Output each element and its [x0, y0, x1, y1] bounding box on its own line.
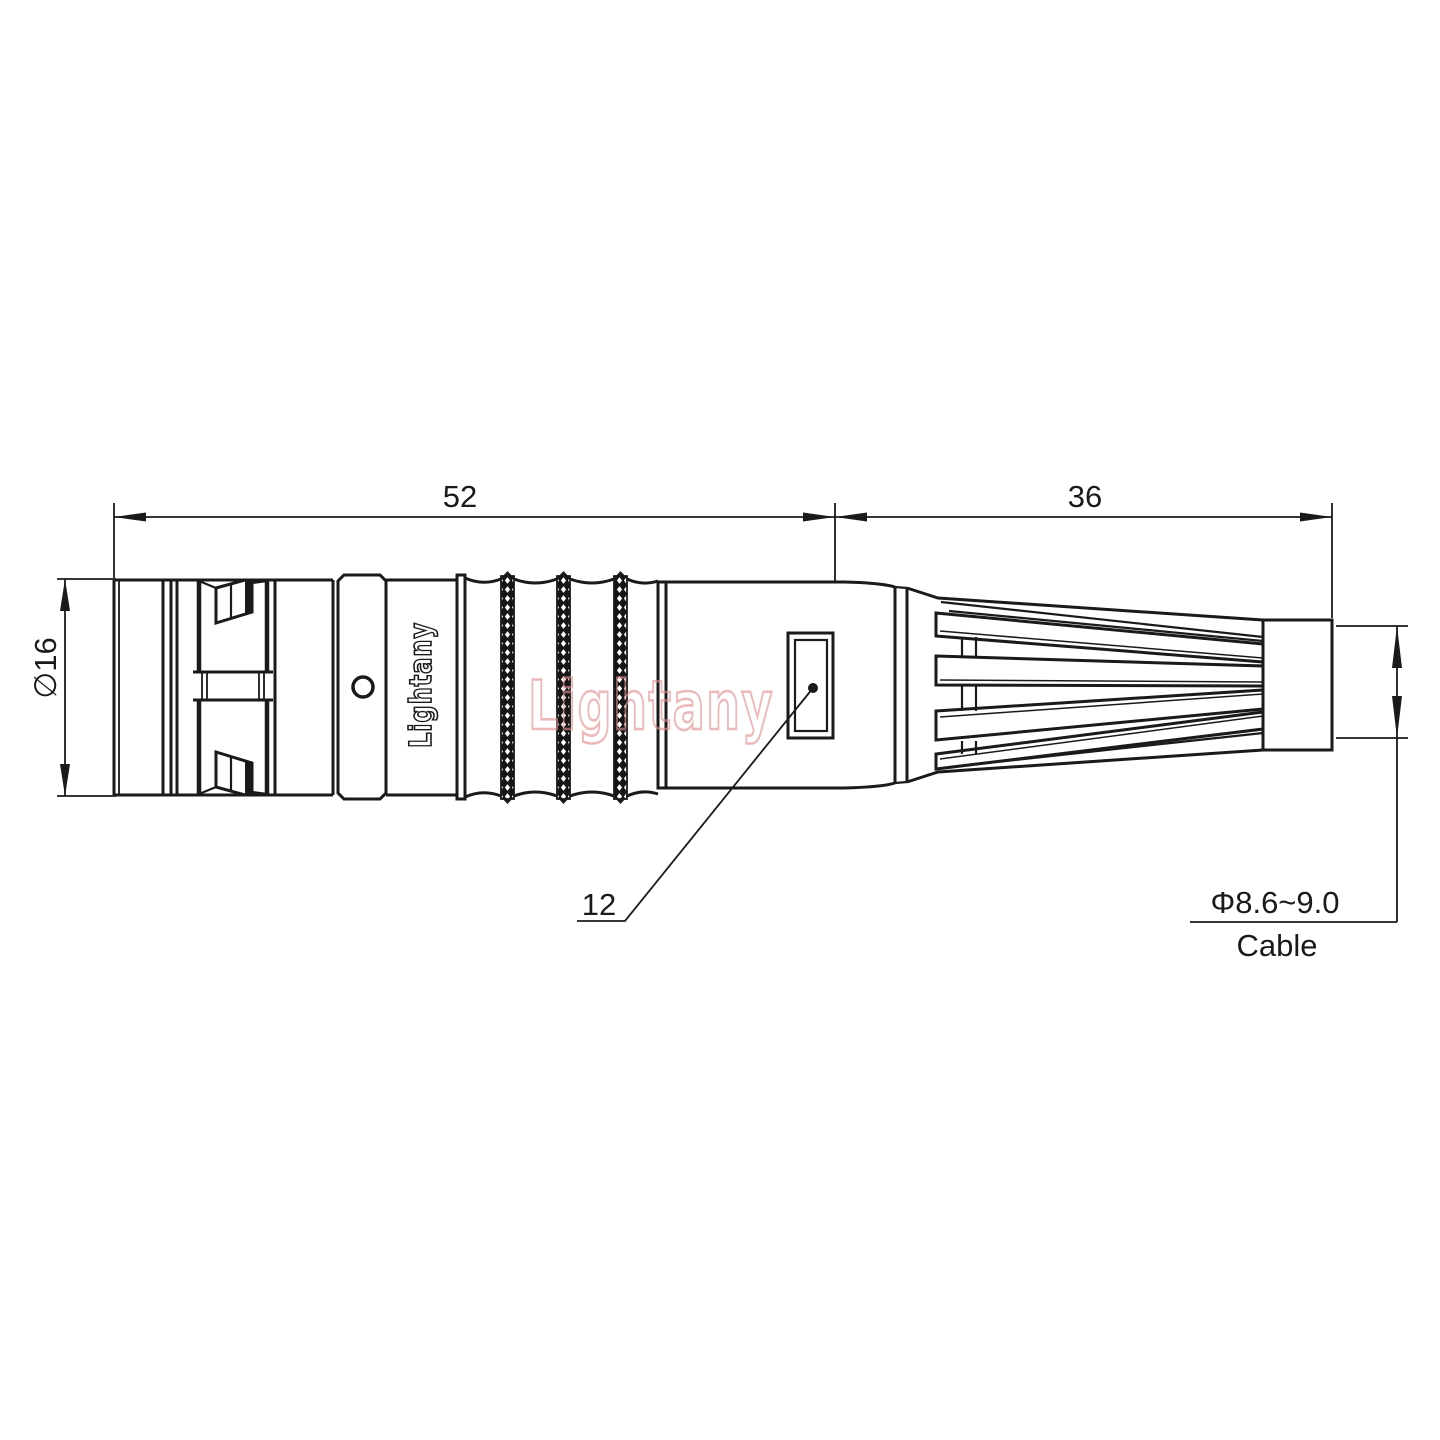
- dimension-36: 36: [835, 479, 1332, 618]
- dimension-diameter-16: ∅16: [28, 579, 116, 796]
- top-latch-wedge: [199, 580, 267, 623]
- ring-hole: [353, 677, 373, 697]
- bottom-latch-wedge: [199, 752, 267, 795]
- strain-relief-boot: [907, 588, 1263, 782]
- knurl-band: [501, 571, 514, 804]
- latch-section: [177, 580, 275, 795]
- boot-fin: [936, 613, 1263, 662]
- watermark-text: Lightany: [528, 667, 774, 746]
- body-logo-text: Lightany: [404, 622, 439, 748]
- cable-diameter-label: Φ8.6~9.0: [1210, 885, 1339, 920]
- left-flange: [457, 575, 465, 799]
- dim-52-label: 52: [443, 479, 477, 514]
- dimension-52: 52: [114, 479, 835, 581]
- cable-label: Cable: [1237, 928, 1318, 963]
- connector-drawing: Lightany: [0, 0, 1440, 1440]
- logo-section: Lightany: [404, 622, 439, 748]
- front-sleeve: [114, 580, 171, 795]
- dim-12-label: 12: [582, 887, 616, 922]
- boot-fin: [936, 656, 1263, 686]
- dim-36-label: 36: [1068, 479, 1102, 514]
- dim-16-label: ∅16: [28, 637, 63, 699]
- cable-end-cap: [1263, 620, 1332, 750]
- coupling-ring: [338, 575, 386, 799]
- technical-drawing-canvas: Lightany: [0, 0, 1440, 1440]
